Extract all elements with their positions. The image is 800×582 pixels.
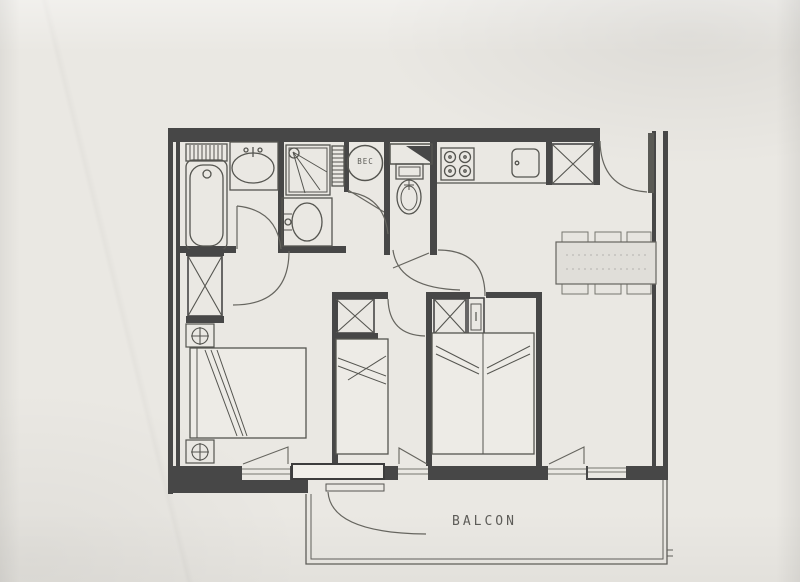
stove-4-burners [441,148,474,180]
towel-radiator [332,146,344,186]
wall-closet-panel-left [546,142,552,185]
chair [562,283,588,294]
lamp-symbol [191,327,209,345]
bathroom-door [237,206,281,249]
entrance-door-swing-arc [600,141,647,192]
wc [390,144,432,214]
wardrobe-bedroom1 [186,249,224,323]
wall-top [168,128,600,142]
bedroom2-door-swing-arc [388,299,425,336]
dining-set [556,232,656,294]
chair [627,283,651,294]
kitchen-sink [512,149,539,177]
balcony-label: BALCON [452,514,517,529]
bedroom1-door-swing-arc [233,251,289,305]
entrance-door [600,133,654,193]
twin-bed [336,339,388,454]
wall-bedroom2-top [332,292,388,299]
entrance-door-leaf [648,133,654,193]
balcony-door-swing-arc [328,492,426,534]
wall-left-outer [168,128,173,494]
window-swing-bedroom2 [399,448,427,464]
small-cabinet [468,298,484,336]
dining-table [556,242,656,284]
chair [562,232,588,243]
wc-door [393,250,460,290]
wall-left-inner [176,142,180,466]
hand-basin [282,198,332,246]
toilet [396,164,423,214]
bedroom3-furniture [432,333,534,454]
wall-bedroom3-top-band [432,292,470,299]
wall-wc-right [430,142,437,255]
bathtub [186,160,227,250]
chair [627,232,651,243]
double-bed [190,348,306,438]
bedroom1-furniture [186,324,306,463]
balcony-door-threshold [326,484,384,491]
kitchen [437,148,546,183]
wall-right-outer [663,131,668,480]
wall-wc-left [384,142,390,255]
wall-showerroom-bottom [278,246,346,253]
window-swing-bedroom1 [243,447,288,464]
floorplan-drawing [0,0,800,582]
wall-bedroom2-3 [426,292,432,466]
showerroom-door [348,190,388,234]
bathroom [186,142,278,250]
shower [286,145,330,195]
scanned-floorplan-paper: BEC BALCON [0,0,800,582]
wall-bottom-left-band [168,480,308,493]
duct-shaft [390,144,432,164]
chair [595,232,621,243]
wardrobe-bedroom2 [332,299,378,339]
wall-closet-panel-right [594,142,600,185]
balcony-door-leaf [292,464,384,479]
radiator [186,144,227,161]
opening-window-living [548,466,586,480]
wall-bedroom3-top [486,292,542,298]
wall-bedroom3-right [536,292,542,466]
opening-window-bedroom1 [242,466,290,480]
opening-window-bedroom2 [398,466,428,480]
chair [595,283,621,294]
vanity-basin [230,142,278,190]
bedroom2-furniture [336,339,388,454]
wardrobe-entry-closet [552,144,594,184]
water-heater-label: BEC [352,157,379,166]
lamp-symbol [191,443,209,461]
window-swing-living [549,447,584,464]
